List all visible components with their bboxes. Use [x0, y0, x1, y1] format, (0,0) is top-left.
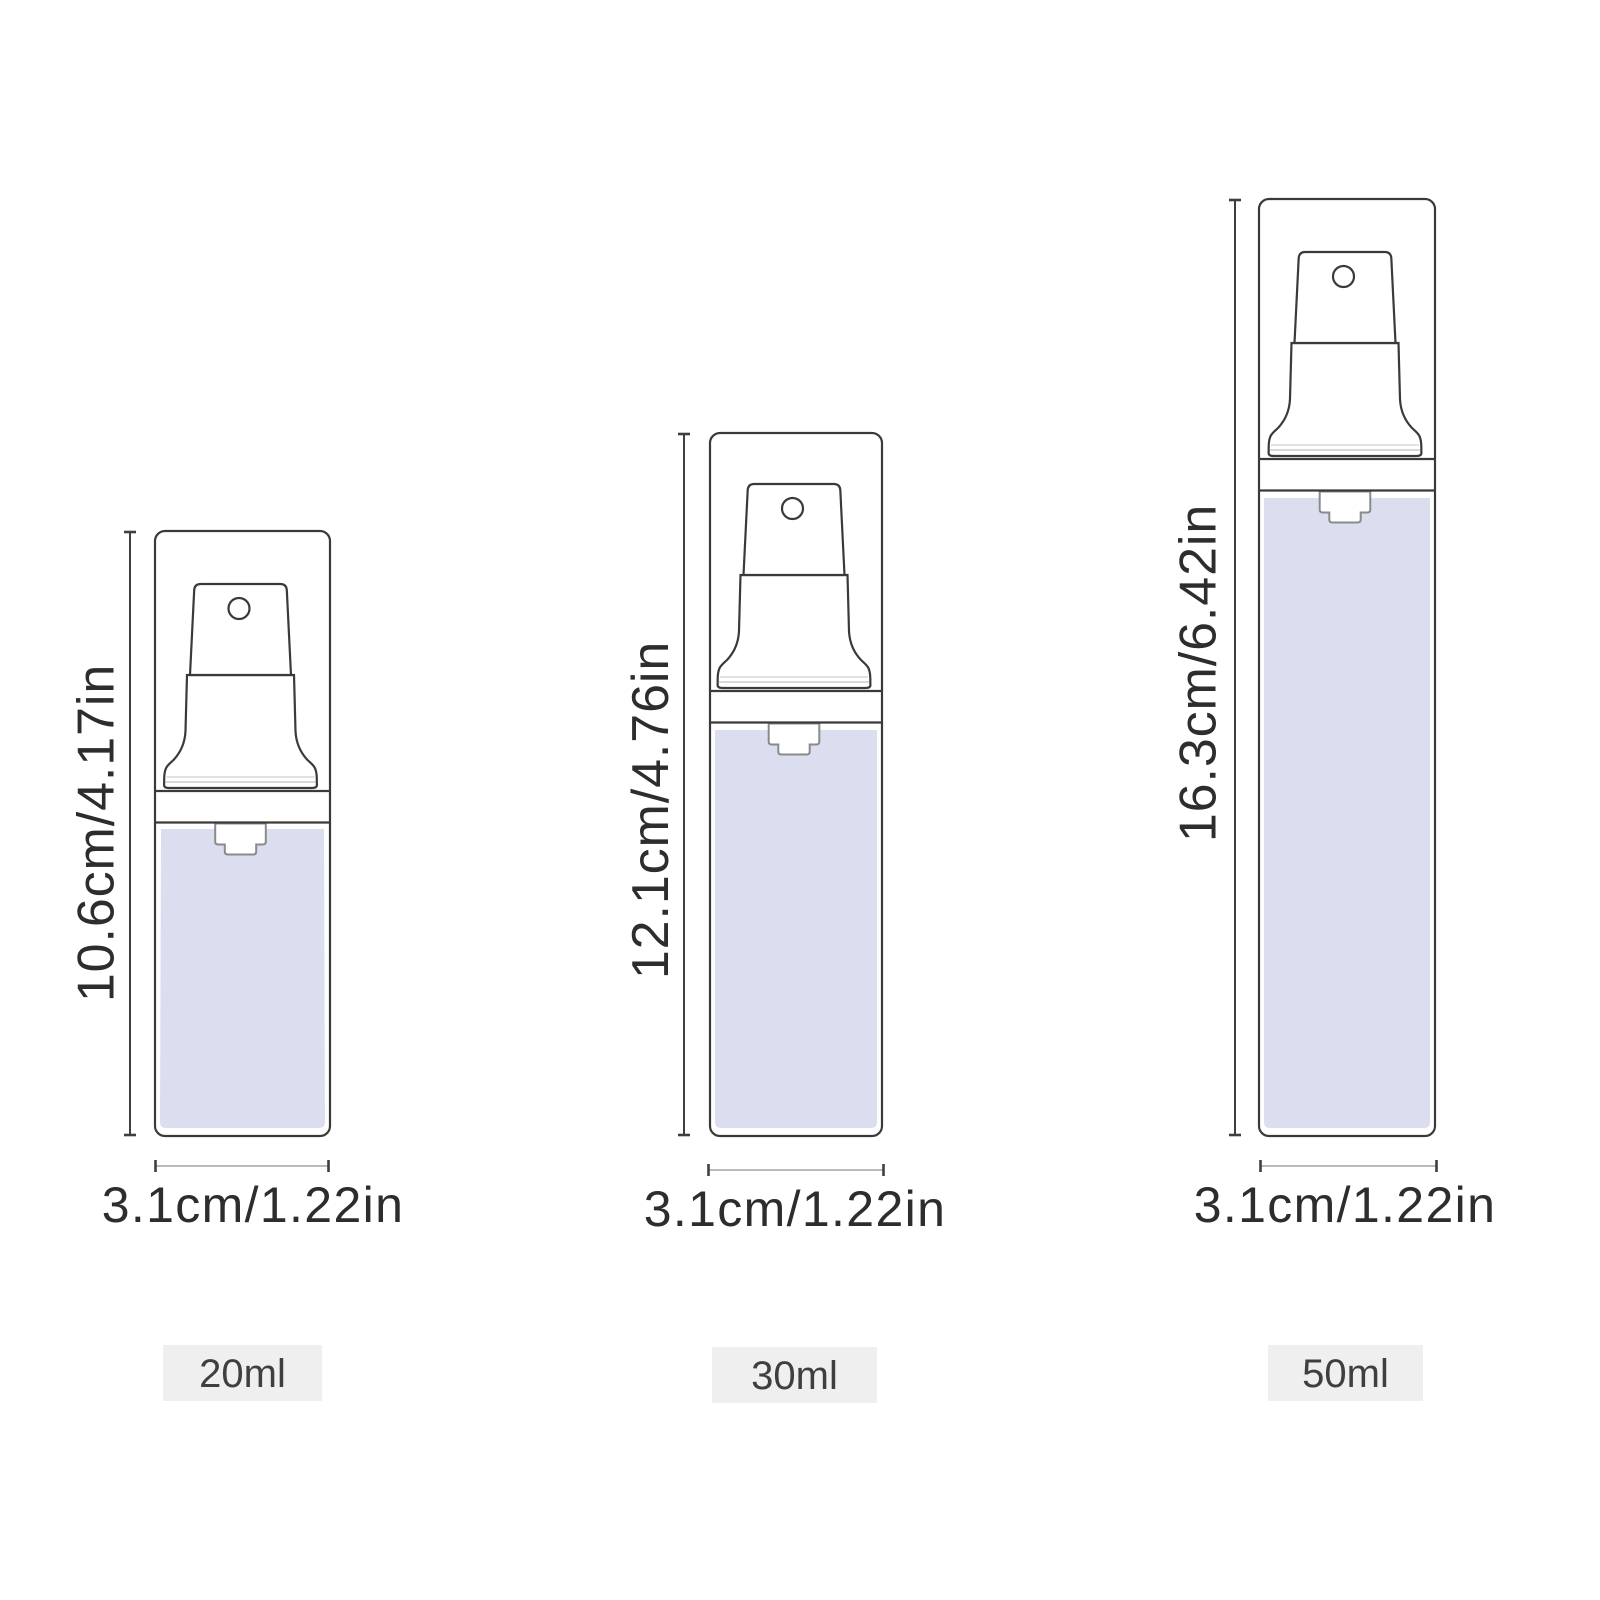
svg-text:30ml: 30ml	[751, 1354, 838, 1398]
svg-text:16.3cm/6.42in: 16.3cm/6.42in	[1170, 504, 1228, 842]
svg-text:3.1cm/1.22in: 3.1cm/1.22in	[644, 1181, 946, 1237]
svg-text:12.1cm/4.76in: 12.1cm/4.76in	[622, 641, 680, 979]
svg-text:3.1cm/1.22in: 3.1cm/1.22in	[102, 1177, 404, 1233]
svg-text:50ml: 50ml	[1302, 1352, 1389, 1396]
svg-text:20ml: 20ml	[199, 1352, 286, 1396]
svg-text:10.6cm/4.17in: 10.6cm/4.17in	[68, 664, 126, 1002]
svg-text:3.1cm/1.22in: 3.1cm/1.22in	[1194, 1177, 1496, 1233]
